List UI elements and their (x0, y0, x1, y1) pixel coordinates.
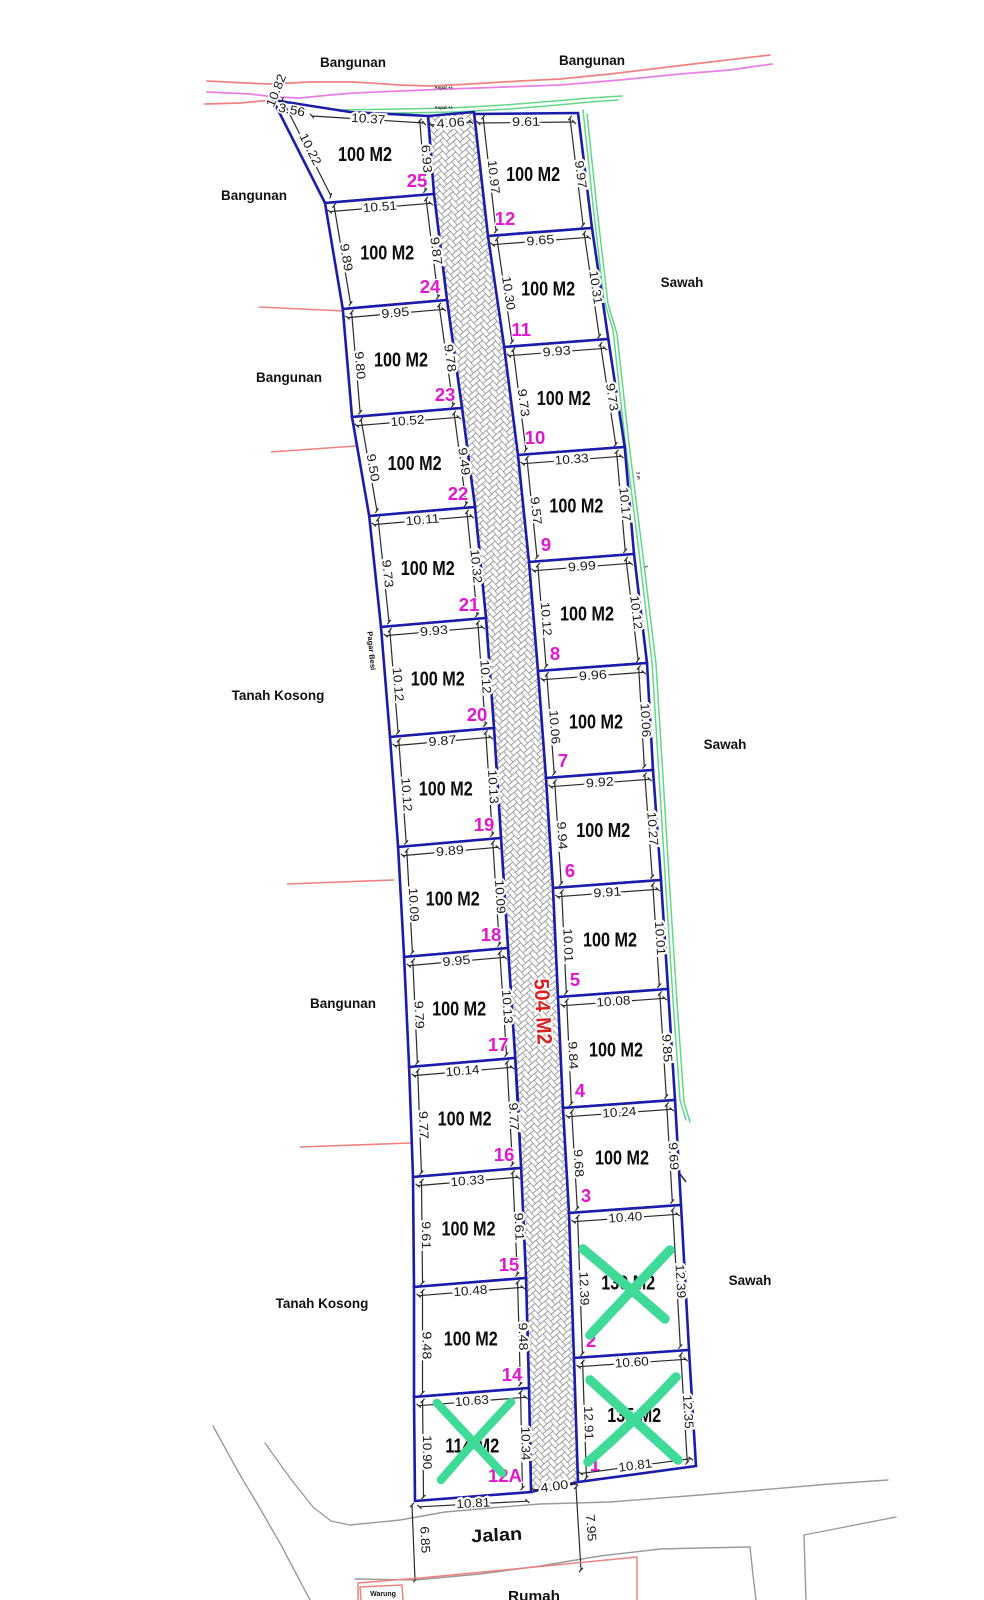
svg-text:100 M2: 100 M2 (595, 1148, 649, 1170)
svg-text:10.09: 10.09 (492, 879, 508, 914)
svg-text:Sawah: Sawah (729, 1273, 772, 1288)
svg-text:6.85: 6.85 (417, 1526, 432, 1554)
svg-text:10.14: 10.14 (445, 1063, 480, 1080)
svg-text:10.37: 10.37 (351, 111, 386, 127)
svg-text:100 M2: 100 M2 (537, 388, 591, 410)
svg-text:10.01: 10.01 (652, 921, 668, 956)
svg-text:5: 5 (570, 969, 580, 990)
svg-text:Rumah: Rumah (508, 1588, 560, 1600)
svg-text:16: 16 (494, 1144, 515, 1165)
svg-text:9.95: 9.95 (442, 953, 471, 969)
svg-text:100 M2: 100 M2 (560, 604, 614, 626)
svg-text:9.95: 9.95 (381, 305, 410, 321)
svg-text:10.11: 10.11 (405, 511, 440, 528)
svg-text:9.68: 9.68 (571, 1149, 587, 1178)
svg-text:3: 3 (581, 1185, 591, 1206)
svg-text:9.69: 9.69 (666, 1142, 682, 1171)
svg-text:10.40: 10.40 (608, 1209, 643, 1225)
svg-text:9.57: 9.57 (528, 496, 545, 525)
svg-text:9.73: 9.73 (379, 559, 396, 588)
svg-text:10.63: 10.63 (454, 1393, 489, 1410)
svg-text:100 M2: 100 M2 (589, 1040, 643, 1062)
svg-text:100 M2: 100 M2 (438, 1109, 492, 1131)
svg-text:Jalan: Jalan (471, 1524, 523, 1547)
svg-text:10.27: 10.27 (644, 811, 660, 846)
svg-text:19: 19 (474, 814, 495, 835)
svg-text:Bangunan: Bangunan (310, 996, 376, 1011)
svg-text:10.01: 10.01 (560, 928, 576, 963)
svg-text:10.12: 10.12 (477, 659, 493, 694)
svg-text:100 M2: 100 M2 (442, 1219, 496, 1241)
svg-text:6.93: 6.93 (418, 144, 434, 173)
svg-text:10: 10 (525, 427, 546, 448)
svg-text:100 M2: 100 M2 (549, 496, 603, 518)
svg-text:Bangunan: Bangunan (221, 188, 287, 203)
svg-text:9.48: 9.48 (516, 1322, 531, 1350)
svg-text:10.34: 10.34 (518, 1426, 533, 1460)
svg-text:4.06: 4.06 (436, 115, 465, 131)
svg-text:Aspal +/-: Aspal +/- (435, 85, 454, 90)
svg-text:12.91: 12.91 (581, 1406, 596, 1440)
svg-text:100 M2: 100 M2 (432, 999, 486, 1021)
svg-text:10.12: 10.12 (390, 667, 407, 702)
svg-text:10.48: 10.48 (453, 1283, 488, 1300)
svg-text:10.06: 10.06 (638, 703, 654, 738)
svg-text:6: 6 (565, 860, 575, 881)
svg-text:10.51: 10.51 (362, 199, 397, 216)
svg-text:Tanah Kosong: Tanah Kosong (232, 688, 325, 703)
svg-text:100 M2: 100 M2 (569, 712, 623, 734)
svg-text:9.93: 9.93 (542, 343, 571, 359)
svg-text:10.90: 10.90 (420, 1435, 434, 1469)
svg-text:10.09: 10.09 (406, 887, 422, 922)
svg-text:10.33: 10.33 (450, 1173, 485, 1190)
svg-text:12.39: 12.39 (673, 1264, 689, 1299)
svg-text:9.84: 9.84 (565, 1041, 580, 1070)
svg-text:100 M2: 100 M2 (374, 350, 428, 372)
svg-text:100 M2: 100 M2 (583, 930, 637, 952)
svg-text:9.91: 9.91 (593, 884, 622, 900)
svg-text:10.12: 10.12 (398, 777, 414, 812)
svg-text:Bangunan: Bangunan (320, 55, 386, 70)
svg-text:9.85: 9.85 (659, 1034, 675, 1063)
svg-text:Bangunan: Bangunan (256, 370, 322, 385)
svg-text:9.61: 9.61 (419, 1221, 433, 1249)
svg-text:10.33: 10.33 (554, 451, 589, 468)
svg-text:12.35: 12.35 (680, 1394, 696, 1429)
svg-text:9.92: 9.92 (585, 774, 614, 790)
svg-text:10.17: 10.17 (616, 487, 633, 522)
svg-text:100 M2: 100 M2 (419, 779, 473, 801)
svg-text:9.77: 9.77 (416, 1111, 431, 1140)
svg-text:20: 20 (467, 704, 488, 725)
svg-text:9.61: 9.61 (512, 115, 540, 129)
svg-text:11: 11 (511, 319, 531, 340)
svg-text:10.12: 10.12 (538, 601, 555, 636)
svg-text:100 M2: 100 M2 (388, 453, 442, 475)
svg-text:22: 22 (448, 483, 469, 504)
svg-text:Sawah: Sawah (661, 275, 704, 290)
svg-text:24: 24 (420, 276, 441, 297)
svg-text:23: 23 (435, 384, 456, 405)
svg-text:21: 21 (459, 594, 480, 615)
svg-text:10.60: 10.60 (614, 1354, 649, 1370)
svg-text:10.08: 10.08 (596, 993, 631, 1009)
svg-text:7: 7 (558, 750, 568, 771)
svg-text:4: 4 (575, 1080, 586, 1101)
svg-text:9.48: 9.48 (420, 1331, 434, 1359)
svg-text:9.79: 9.79 (411, 1001, 426, 1030)
svg-text:9.96: 9.96 (578, 667, 607, 683)
svg-text:14: 14 (502, 1364, 523, 1385)
svg-text:9.87: 9.87 (428, 733, 457, 749)
svg-text:25: 25 (407, 170, 428, 191)
svg-text:10.13: 10.13 (485, 769, 501, 804)
svg-text:100 M2: 100 M2 (521, 279, 575, 301)
svg-text:12: 12 (495, 208, 516, 229)
svg-text:Tanah Kosong: Tanah Kosong (276, 1296, 369, 1311)
svg-text:100 M2: 100 M2 (401, 558, 455, 580)
svg-text:18: 18 (481, 924, 502, 945)
svg-text:100 M2: 100 M2 (426, 889, 480, 911)
svg-text:8: 8 (550, 643, 560, 664)
svg-text:9.99: 9.99 (567, 558, 596, 574)
svg-text:504 M2: 504 M2 (529, 978, 555, 1045)
svg-text:10.24: 10.24 (602, 1104, 637, 1120)
svg-text:Aspal +/-: Aspal +/- (435, 105, 454, 110)
svg-text:17: 17 (488, 1034, 509, 1055)
svg-text:100 M2: 100 M2 (360, 243, 414, 265)
svg-text:9.94: 9.94 (554, 821, 570, 850)
svg-text:9.61: 9.61 (511, 1212, 526, 1241)
svg-text:9.89: 9.89 (435, 843, 464, 859)
svg-text:10.13: 10.13 (499, 989, 515, 1024)
svg-text:100 M2: 100 M2 (506, 164, 560, 186)
svg-text:12.39: 12.39 (576, 1271, 591, 1306)
svg-text:9.80: 9.80 (352, 351, 368, 380)
svg-text:9.65: 9.65 (526, 232, 555, 248)
svg-text:9.93: 9.93 (419, 623, 448, 639)
svg-text:100 M2: 100 M2 (338, 144, 392, 166)
svg-text:10.52: 10.52 (390, 413, 425, 430)
svg-text:7.95: 7.95 (583, 1514, 599, 1542)
svg-text:9: 9 (541, 534, 551, 555)
svg-text:Warung: Warung (370, 1591, 396, 1598)
svg-text:100 M2: 100 M2 (411, 669, 465, 691)
svg-text:100 M2: 100 M2 (444, 1329, 498, 1351)
svg-text:15: 15 (499, 1254, 520, 1275)
svg-text:100 M2: 100 M2 (576, 820, 630, 842)
svg-text:Sawah: Sawah (704, 737, 747, 752)
svg-text:9.77: 9.77 (506, 1102, 521, 1131)
svg-text:10.06: 10.06 (546, 710, 563, 745)
svg-text:Bangunan: Bangunan (559, 53, 625, 68)
